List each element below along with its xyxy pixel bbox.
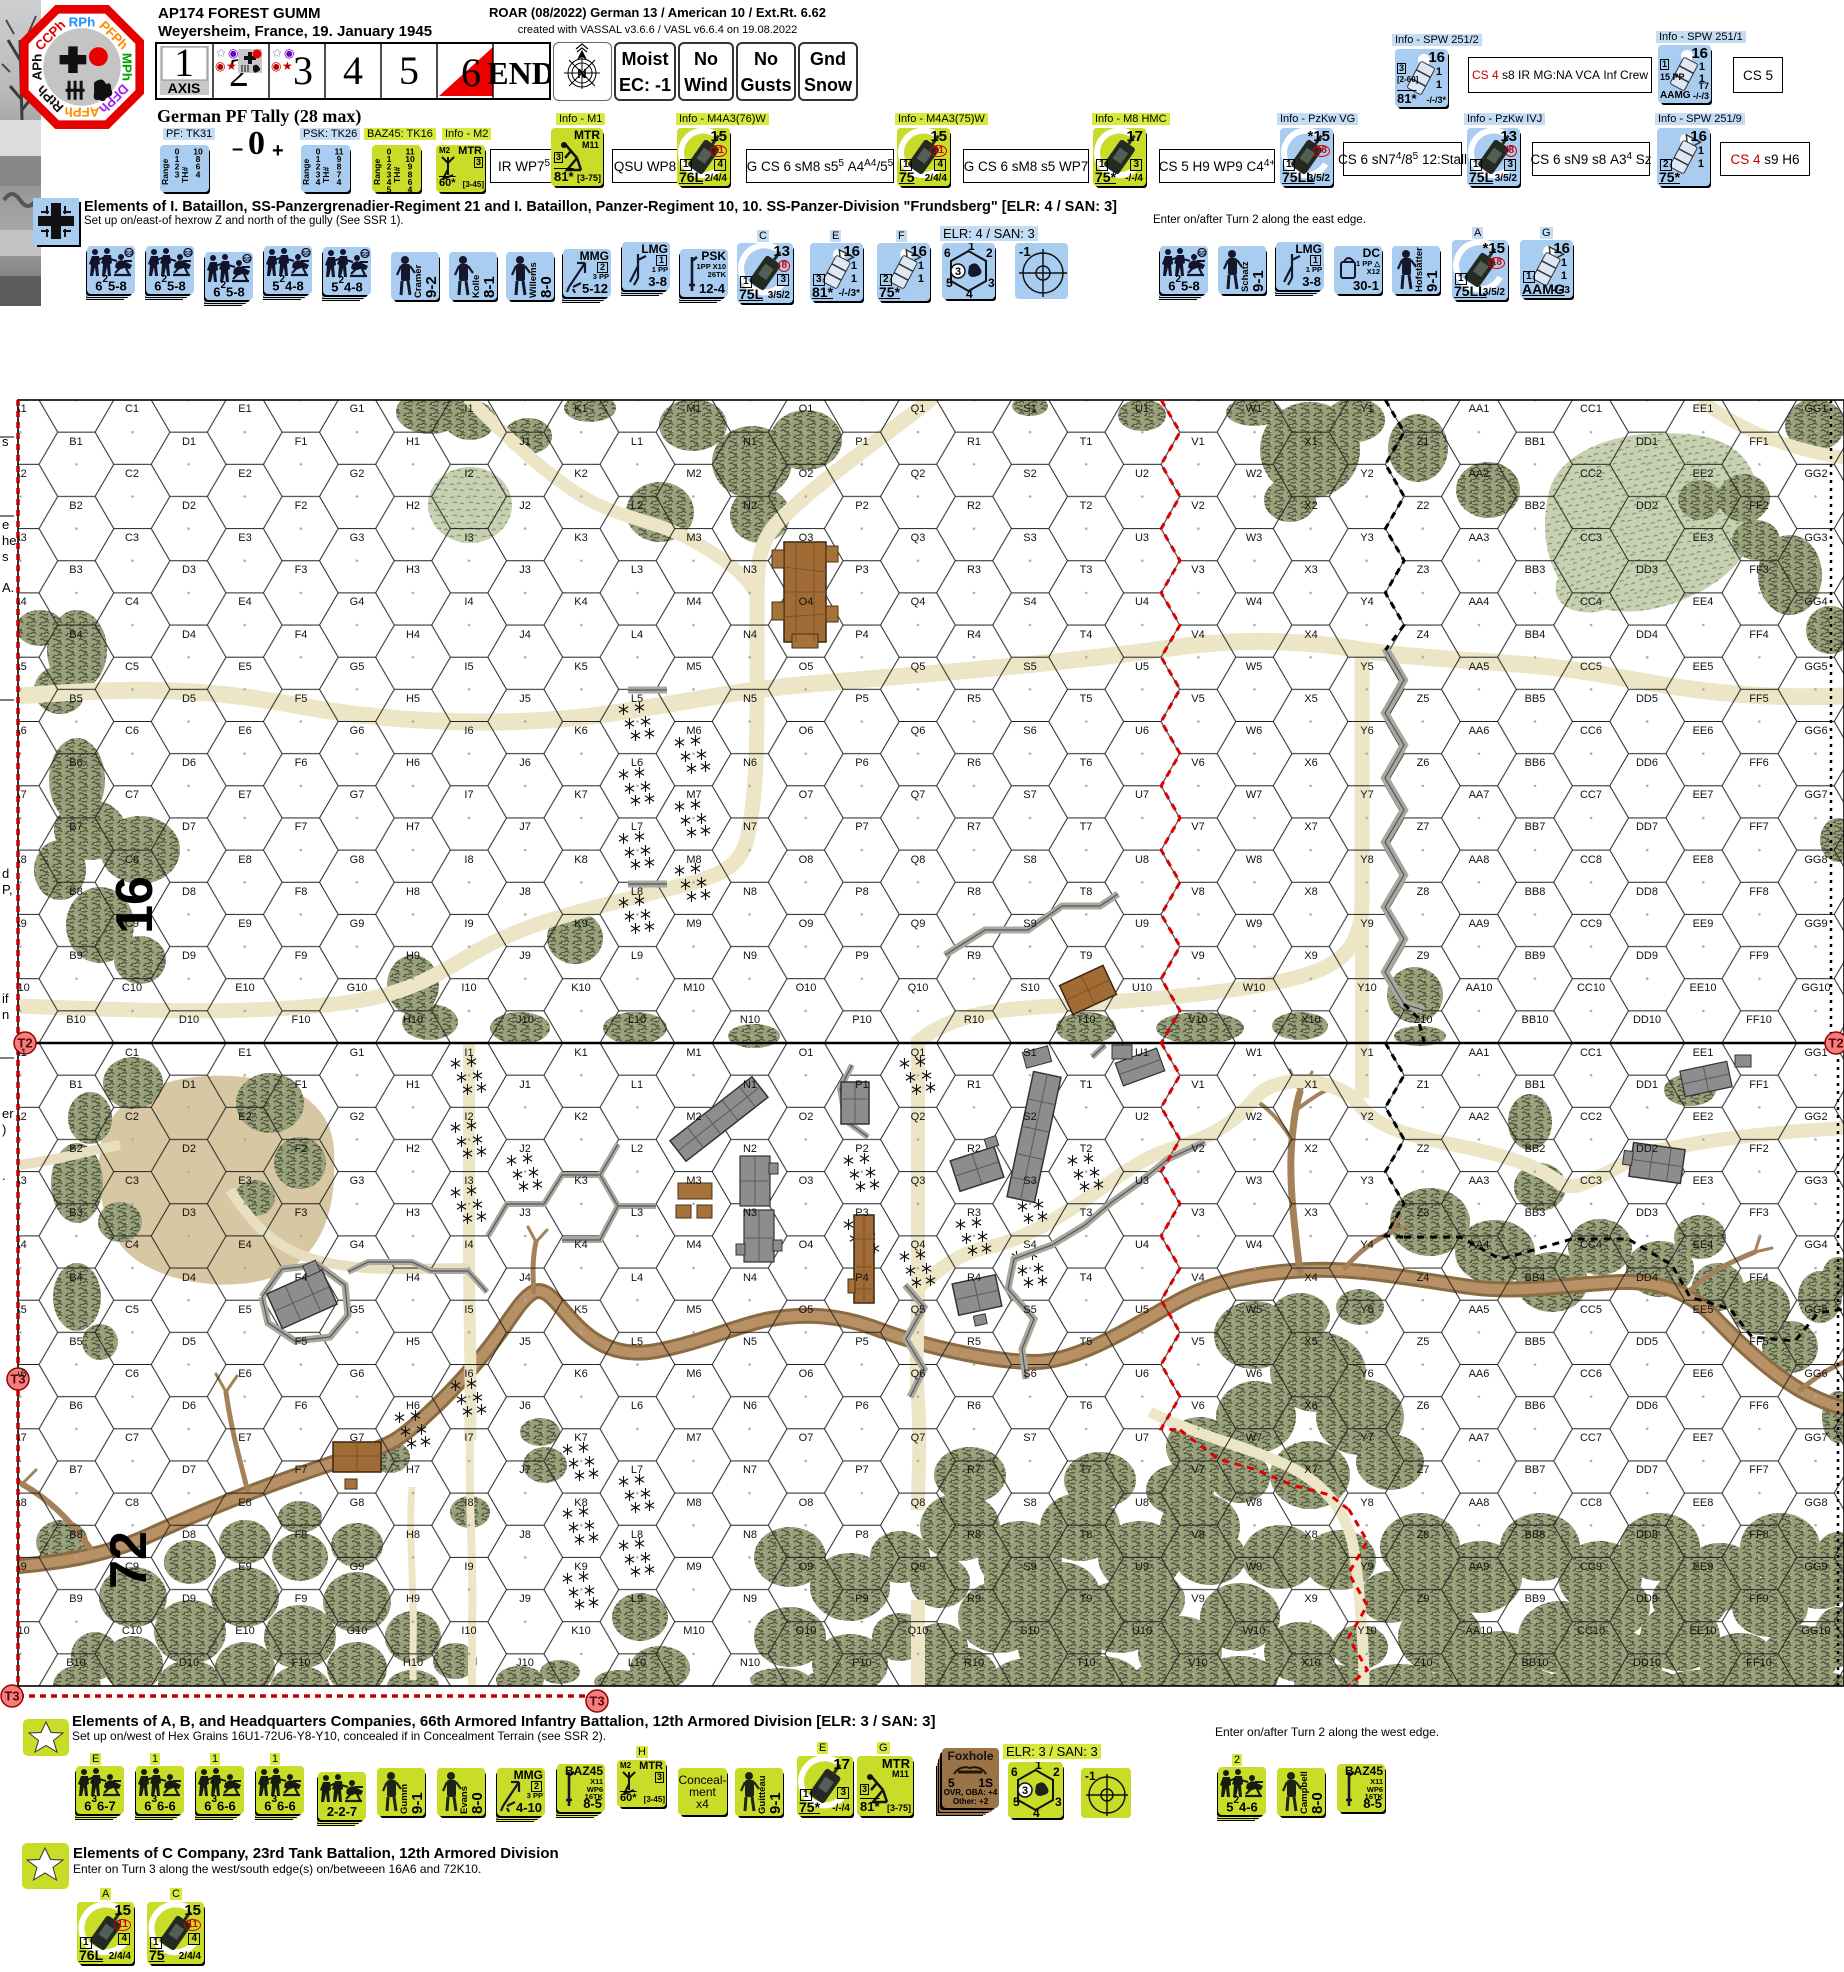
svg-text:J5: J5	[519, 693, 531, 705]
svg-text:GG8: GG8	[1804, 854, 1827, 866]
svg-text:L5: L5	[631, 693, 643, 705]
svg-text:C8: C8	[125, 1497, 139, 1509]
svg-text:DD8: DD8	[1636, 1529, 1658, 1541]
svg-text:I9: I9	[464, 1561, 473, 1573]
svg-text:A9: A9	[13, 918, 26, 930]
svg-text:Q1: Q1	[911, 403, 926, 415]
svg-text:GG3: GG3	[1804, 1175, 1827, 1187]
svg-text:e: e	[2, 517, 9, 532]
svg-text:G2: G2	[350, 1111, 365, 1123]
svg-text:V6: V6	[1191, 1400, 1204, 1412]
svg-text:T6: T6	[1080, 1400, 1093, 1412]
svg-text:B8: B8	[69, 886, 82, 898]
svg-text:P10: P10	[852, 1657, 872, 1669]
svg-text:R7: R7	[967, 1464, 981, 1476]
svg-text:BB3: BB3	[1525, 564, 1546, 576]
svg-text:U4: U4	[1135, 1239, 1149, 1251]
svg-text:I3: I3	[464, 1175, 473, 1187]
svg-text:X8: X8	[1304, 1529, 1317, 1541]
svg-text:EE8: EE8	[1693, 854, 1714, 866]
svg-text:Z1: Z1	[1417, 1079, 1430, 1091]
svg-text:O1: O1	[799, 1047, 814, 1059]
svg-text:G4: G4	[350, 1239, 365, 1251]
svg-text:C5: C5	[125, 661, 139, 673]
svg-text:V6: V6	[1191, 757, 1204, 769]
svg-text:X1: X1	[1304, 436, 1317, 448]
svg-text:T4: T4	[1080, 629, 1093, 641]
svg-text:AA4: AA4	[1469, 596, 1490, 608]
svg-text:Q3: Q3	[911, 1175, 926, 1187]
svg-text:N4: N4	[743, 1272, 757, 1284]
svg-text:DD9: DD9	[1636, 950, 1658, 962]
svg-text:GG5: GG5	[1804, 1304, 1827, 1316]
svg-text:N6: N6	[743, 1400, 757, 1412]
svg-text:Y3: Y3	[1360, 1175, 1373, 1187]
svg-text:Y4: Y4	[1360, 596, 1373, 608]
svg-text:AA5: AA5	[1469, 661, 1490, 673]
svg-text:U2: U2	[1135, 1111, 1149, 1123]
svg-text:G7: G7	[350, 789, 365, 801]
svg-text:J8: J8	[519, 886, 531, 898]
svg-text:Q2: Q2	[911, 1111, 926, 1123]
svg-text:X9: X9	[1304, 950, 1317, 962]
svg-text:I7: I7	[464, 1432, 473, 1444]
svg-text:G4: G4	[350, 596, 365, 608]
svg-text:T3: T3	[1080, 1207, 1093, 1219]
svg-text:P9: P9	[855, 950, 868, 962]
svg-text:J1: J1	[519, 436, 531, 448]
svg-text:X3: X3	[1304, 564, 1317, 576]
svg-text:L9: L9	[631, 950, 643, 962]
svg-text:Q4: Q4	[911, 1239, 926, 1251]
svg-text:BB7: BB7	[1525, 1464, 1546, 1476]
svg-text:A7: A7	[13, 1432, 26, 1444]
svg-text:Y4: Y4	[1360, 1239, 1373, 1251]
svg-text:N3: N3	[743, 1207, 757, 1219]
svg-text:Z8: Z8	[1417, 886, 1430, 898]
svg-text:X10: X10	[1301, 1657, 1321, 1669]
svg-text:U1: U1	[1135, 403, 1149, 415]
svg-text:E2: E2	[238, 468, 251, 480]
svg-text:GG8: GG8	[1804, 1497, 1827, 1509]
svg-text:M5: M5	[686, 1304, 701, 1316]
svg-text:B7: B7	[69, 821, 82, 833]
svg-text:L3: L3	[631, 1207, 643, 1219]
svg-text:AA9: AA9	[1469, 1561, 1490, 1573]
svg-text:F9: F9	[295, 1593, 308, 1605]
svg-text:L1: L1	[631, 436, 643, 448]
svg-text:AA7: AA7	[1469, 789, 1490, 801]
svg-text:X1: X1	[1304, 1079, 1317, 1091]
svg-text:GG1: GG1	[1804, 403, 1827, 415]
svg-text:BB9: BB9	[1525, 950, 1546, 962]
svg-text:H3: H3	[406, 1207, 420, 1219]
svg-text:FF10: FF10	[1746, 1657, 1772, 1669]
svg-text:B9: B9	[69, 950, 82, 962]
svg-text:Y9: Y9	[1360, 918, 1373, 930]
svg-text:D7: D7	[182, 1464, 196, 1476]
svg-text:L6: L6	[631, 1400, 643, 1412]
svg-text:I3: I3	[464, 532, 473, 544]
svg-text:O5: O5	[799, 661, 814, 673]
svg-text:GG9: GG9	[1804, 1561, 1827, 1573]
svg-text:X2: X2	[1304, 500, 1317, 512]
svg-text:FF6: FF6	[1749, 757, 1769, 769]
svg-text:D10: D10	[179, 1014, 199, 1026]
svg-text:R1: R1	[967, 436, 981, 448]
svg-text:AA10: AA10	[1466, 982, 1493, 994]
svg-text:FF8: FF8	[1749, 886, 1769, 898]
svg-text:R4: R4	[967, 1272, 981, 1284]
svg-text:F8: F8	[295, 886, 308, 898]
svg-text:Z3: Z3	[1417, 1207, 1430, 1219]
svg-text:V9: V9	[1191, 1593, 1204, 1605]
svg-text:Q7: Q7	[911, 1432, 926, 1444]
svg-text:R8: R8	[967, 886, 981, 898]
svg-text:4: 4	[1033, 1806, 1040, 1818]
svg-text:Z6: Z6	[1417, 757, 1430, 769]
svg-text:EE3: EE3	[1693, 532, 1714, 544]
svg-text:L5: L5	[631, 1336, 643, 1348]
svg-text:B6: B6	[69, 1400, 82, 1412]
svg-text:U5: U5	[1135, 1304, 1149, 1316]
svg-text:N3: N3	[743, 564, 757, 576]
svg-text:U1: U1	[1135, 1047, 1149, 1059]
svg-text:F9: F9	[295, 950, 308, 962]
svg-text:CC9: CC9	[1580, 1561, 1602, 1573]
svg-text:T8: T8	[1080, 1529, 1093, 1541]
svg-text:B9: B9	[69, 1593, 82, 1605]
svg-text:K3: K3	[574, 532, 587, 544]
svg-text:K10: K10	[571, 982, 591, 994]
svg-text:I4: I4	[464, 1239, 473, 1251]
svg-text:X10: X10	[1301, 1014, 1321, 1026]
svg-text:Z10: Z10	[1414, 1014, 1433, 1026]
svg-text:M10: M10	[683, 982, 704, 994]
svg-text:H9: H9	[406, 950, 420, 962]
svg-text:M6: M6	[686, 1368, 701, 1380]
svg-text:P7: P7	[855, 1464, 868, 1476]
svg-text:N6: N6	[743, 757, 757, 769]
svg-text:CC6: CC6	[1580, 1368, 1602, 1380]
svg-text:T5: T5	[1080, 1336, 1093, 1348]
svg-text:M10: M10	[683, 1625, 704, 1637]
svg-text:S9: S9	[1023, 918, 1036, 930]
svg-text:W3: W3	[1246, 1175, 1263, 1187]
svg-text:U7: U7	[1135, 1432, 1149, 1444]
svg-text:B2: B2	[69, 500, 82, 512]
svg-text:N2: N2	[743, 1143, 757, 1155]
svg-text:M1: M1	[686, 403, 701, 415]
svg-text:D9: D9	[182, 950, 196, 962]
svg-text:D1: D1	[182, 1079, 196, 1091]
svg-text:T9: T9	[1080, 950, 1093, 962]
svg-text:EE7: EE7	[1693, 1432, 1714, 1444]
svg-text:P3: P3	[855, 1207, 868, 1219]
svg-text:T6: T6	[1080, 757, 1093, 769]
svg-text:U3: U3	[1135, 532, 1149, 544]
svg-text:BB7: BB7	[1525, 821, 1546, 833]
svg-text:DD6: DD6	[1636, 1400, 1658, 1412]
svg-text:C3: C3	[125, 532, 139, 544]
svg-text:AA4: AA4	[1469, 1239, 1490, 1251]
svg-text:Q8: Q8	[911, 1497, 926, 1509]
svg-text:G8: G8	[350, 854, 365, 866]
svg-text:DD1: DD1	[1636, 436, 1658, 448]
svg-text:S8: S8	[1023, 854, 1036, 866]
svg-text:S3: S3	[1023, 532, 1036, 544]
svg-text:K5: K5	[574, 661, 587, 673]
svg-text:DD2: DD2	[1636, 500, 1658, 512]
svg-text:GG5: GG5	[1804, 661, 1827, 673]
svg-text:U8: U8	[1135, 854, 1149, 866]
svg-text:V3: V3	[1191, 564, 1204, 576]
svg-text:A8: A8	[13, 854, 26, 866]
svg-text:CC2: CC2	[1580, 1111, 1602, 1123]
svg-text:AA3: AA3	[1469, 532, 1490, 544]
svg-text:DD7: DD7	[1636, 1464, 1658, 1476]
svg-text:O7: O7	[799, 789, 814, 801]
svg-text:BB9: BB9	[1525, 1593, 1546, 1605]
svg-text:L4: L4	[631, 1272, 643, 1284]
svg-text:Y1: Y1	[1360, 1047, 1373, 1059]
svg-text:N9: N9	[743, 950, 757, 962]
svg-text:Y1: Y1	[1360, 403, 1373, 415]
svg-text:FF2: FF2	[1749, 500, 1769, 512]
svg-text:I7: I7	[464, 789, 473, 801]
svg-text:Z7: Z7	[1417, 1464, 1430, 1476]
svg-text:F5: F5	[295, 1336, 308, 1348]
svg-text:F5: F5	[295, 693, 308, 705]
svg-text:E9: E9	[238, 1561, 251, 1573]
svg-text:if: if	[2, 991, 9, 1006]
svg-text:FF7: FF7	[1749, 821, 1769, 833]
svg-text:K9: K9	[574, 918, 587, 930]
svg-text:G3: G3	[350, 1175, 365, 1187]
svg-text:K6: K6	[574, 1368, 587, 1380]
svg-text:H10: H10	[403, 1657, 423, 1669]
svg-text:BB10: BB10	[1522, 1657, 1549, 1669]
svg-text:C1: C1	[125, 403, 139, 415]
svg-text:K3: K3	[574, 1175, 587, 1187]
svg-text:I1: I1	[464, 403, 473, 415]
svg-text:F4: F4	[295, 629, 308, 641]
svg-text:K8: K8	[574, 854, 587, 866]
svg-text:Y2: Y2	[1360, 1111, 1373, 1123]
svg-text:AA8: AA8	[1469, 854, 1490, 866]
svg-text:I5: I5	[464, 1304, 473, 1316]
svg-text:V5: V5	[1191, 1336, 1204, 1348]
svg-text:Q7: Q7	[911, 789, 926, 801]
svg-text:H2: H2	[406, 1143, 420, 1155]
svg-text:X2: X2	[1304, 1143, 1317, 1155]
svg-text:Z9: Z9	[1417, 1593, 1430, 1605]
svg-text:U6: U6	[1135, 725, 1149, 737]
svg-text:V7: V7	[1191, 1464, 1204, 1476]
svg-text:V10: V10	[1188, 1014, 1208, 1026]
svg-text:T3: T3	[4, 1689, 19, 1704]
svg-text:B5: B5	[69, 1336, 82, 1348]
svg-text:S6: S6	[1023, 1368, 1036, 1380]
svg-text:FF6: FF6	[1749, 1400, 1769, 1412]
svg-text:C2: C2	[125, 1111, 139, 1123]
svg-text:S10: S10	[1020, 982, 1040, 994]
svg-text:G8: G8	[350, 1497, 365, 1509]
svg-text:CC3: CC3	[1580, 532, 1602, 544]
svg-text:FF4: FF4	[1749, 629, 1769, 641]
svg-text:FF1: FF1	[1749, 1079, 1769, 1091]
svg-text:Z9: Z9	[1417, 950, 1430, 962]
svg-text:E7: E7	[238, 1432, 251, 1444]
svg-text:S6: S6	[1023, 725, 1036, 737]
svg-text:FF9: FF9	[1749, 950, 1769, 962]
svg-text:H1: H1	[406, 436, 420, 448]
svg-text:O5: O5	[799, 1304, 814, 1316]
svg-text:GG4: GG4	[1804, 1239, 1827, 1251]
svg-text:GG6: GG6	[1804, 1368, 1827, 1380]
svg-text:1: 1	[1035, 1762, 1042, 1772]
svg-text:EE7: EE7	[1693, 789, 1714, 801]
svg-text:CC8: CC8	[1580, 854, 1602, 866]
svg-text:W1: W1	[1246, 1047, 1263, 1059]
svg-text:G5: G5	[350, 1304, 365, 1316]
svg-text:AA3: AA3	[1469, 1175, 1490, 1187]
svg-text:X4: X4	[1304, 1272, 1317, 1284]
svg-text:D8: D8	[182, 1529, 196, 1541]
svg-text:R4: R4	[967, 629, 981, 641]
svg-text:O3: O3	[799, 532, 814, 544]
svg-text:D2: D2	[182, 1143, 196, 1155]
svg-text:E4: E4	[238, 596, 251, 608]
svg-text:X9: X9	[1304, 1593, 1317, 1605]
svg-text:B3: B3	[69, 564, 82, 576]
svg-text:F4: F4	[295, 1272, 308, 1284]
svg-text:I10: I10	[461, 982, 476, 994]
svg-text:T7: T7	[1080, 821, 1093, 833]
svg-text:DD3: DD3	[1636, 564, 1658, 576]
svg-text:W2: W2	[1246, 1111, 1263, 1123]
svg-text:W2: W2	[1246, 468, 1263, 480]
svg-text:E5: E5	[238, 661, 251, 673]
svg-text:BB5: BB5	[1525, 693, 1546, 705]
svg-text:R1: R1	[967, 1079, 981, 1091]
svg-text:er: er	[2, 1106, 14, 1121]
svg-text:X7: X7	[1304, 821, 1317, 833]
svg-text:U10: U10	[1132, 982, 1152, 994]
svg-text:Q10: Q10	[908, 982, 929, 994]
svg-text:R5: R5	[967, 1336, 981, 1348]
svg-text:D4: D4	[182, 629, 196, 641]
svg-text:O2: O2	[799, 468, 814, 480]
svg-text:G6: G6	[350, 725, 365, 737]
svg-text:GG10: GG10	[1801, 982, 1830, 994]
svg-text:M7: M7	[686, 1432, 701, 1444]
svg-text:D3: D3	[182, 1207, 196, 1219]
svg-text:Z5: Z5	[1417, 693, 1430, 705]
svg-text:M4: M4	[686, 596, 701, 608]
svg-text:V1: V1	[1191, 1079, 1204, 1091]
svg-text:I5: I5	[464, 661, 473, 673]
svg-text:D4: D4	[182, 1272, 196, 1284]
svg-text:J7: J7	[519, 821, 531, 833]
svg-text:AA5: AA5	[1469, 1304, 1490, 1316]
svg-text:X8: X8	[1304, 886, 1317, 898]
svg-text:R5: R5	[967, 693, 981, 705]
svg-text:M5: M5	[686, 661, 701, 673]
svg-text:E7: E7	[238, 789, 251, 801]
svg-text:BB4: BB4	[1525, 629, 1546, 641]
svg-text:O7: O7	[799, 1432, 814, 1444]
svg-text:C5: C5	[125, 1304, 139, 1316]
svg-text:R7: R7	[967, 821, 981, 833]
svg-text:A10: A10	[10, 1625, 30, 1637]
svg-text:F6: F6	[295, 1400, 308, 1412]
svg-text:O3: O3	[799, 1175, 814, 1187]
svg-text:R9: R9	[967, 1593, 981, 1605]
svg-text:J9: J9	[519, 1593, 531, 1605]
svg-text:U6: U6	[1135, 1368, 1149, 1380]
svg-text:E1: E1	[238, 403, 251, 415]
svg-text:CC5: CC5	[1580, 1304, 1602, 1316]
svg-text:I8: I8	[464, 1497, 473, 1509]
svg-text:AA8: AA8	[1469, 1497, 1490, 1509]
svg-text:GG4: GG4	[1804, 596, 1827, 608]
svg-text:E4: E4	[238, 1239, 251, 1251]
svg-text:J6: J6	[519, 1400, 531, 1412]
svg-text:W1: W1	[1246, 403, 1263, 415]
svg-text:L8: L8	[631, 1529, 643, 1541]
svg-text:I9: I9	[464, 918, 473, 930]
svg-text:EE2: EE2	[1693, 1111, 1714, 1123]
svg-text:Z3: Z3	[1417, 564, 1430, 576]
svg-text:O4: O4	[799, 1239, 814, 1251]
svg-text:C8: C8	[125, 854, 139, 866]
svg-text:BB3: BB3	[1525, 1207, 1546, 1219]
svg-text:AA7: AA7	[1469, 1432, 1490, 1444]
svg-text:T2: T2	[1080, 1143, 1093, 1155]
svg-text:GG7: GG7	[1804, 1432, 1827, 1444]
svg-text:D2: D2	[182, 500, 196, 512]
svg-text:B4: B4	[69, 1272, 82, 1284]
svg-text:DD7: DD7	[1636, 821, 1658, 833]
svg-text:P2: P2	[855, 500, 868, 512]
svg-text:U8: U8	[1135, 1497, 1149, 1509]
svg-text:Y7: Y7	[1360, 789, 1373, 801]
svg-text:AA1: AA1	[1469, 1047, 1490, 1059]
svg-text:CC10: CC10	[1577, 1625, 1605, 1637]
svg-text:I6: I6	[464, 725, 473, 737]
svg-text:R9: R9	[967, 950, 981, 962]
svg-text:X7: X7	[1304, 1464, 1317, 1476]
svg-text:16: 16	[106, 876, 164, 934]
svg-text:A2: A2	[13, 468, 26, 480]
svg-text:P8: P8	[855, 886, 868, 898]
svg-text:C10: C10	[122, 982, 142, 994]
svg-text:FF1: FF1	[1749, 436, 1769, 448]
svg-text:GG6: GG6	[1804, 725, 1827, 737]
svg-text:O8: O8	[799, 854, 814, 866]
svg-text:M6: M6	[686, 725, 701, 737]
svg-text:L8: L8	[631, 886, 643, 898]
svg-text:I8: I8	[464, 854, 473, 866]
svg-text:P8: P8	[855, 1529, 868, 1541]
svg-text:J10: J10	[516, 1014, 534, 1026]
svg-text:H1: H1	[406, 1079, 420, 1091]
svg-text:K6: K6	[574, 725, 587, 737]
svg-text:M8: M8	[686, 1497, 701, 1509]
svg-text:G9: G9	[350, 1561, 365, 1573]
svg-text:R6: R6	[967, 757, 981, 769]
